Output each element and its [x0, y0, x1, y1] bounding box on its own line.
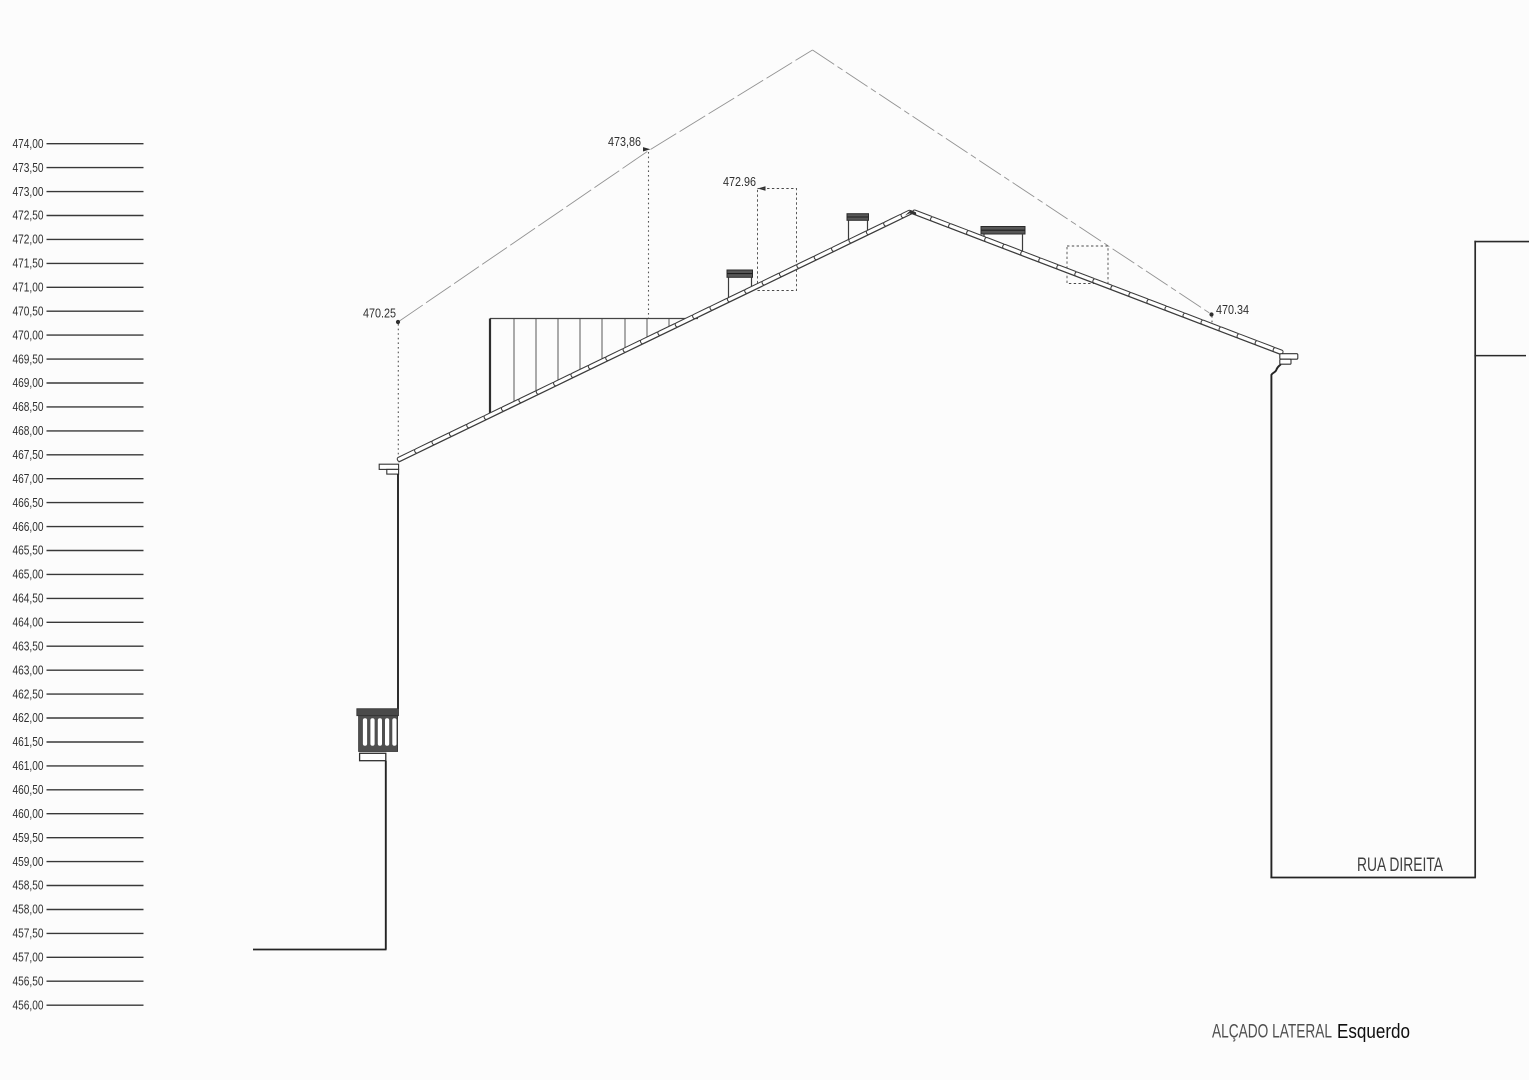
svg-text:459,00: 459,00	[13, 855, 44, 869]
svg-text:466,50: 466,50	[13, 496, 44, 510]
svg-text:461,50: 461,50	[13, 735, 44, 749]
svg-text:456,50: 456,50	[13, 975, 44, 989]
svg-text:472.96: 472.96	[723, 174, 756, 189]
svg-text:472,50: 472,50	[13, 209, 44, 223]
svg-text:463,00: 463,00	[13, 663, 44, 677]
svg-text:460,50: 460,50	[13, 783, 44, 797]
svg-text:457,00: 457,00	[13, 951, 44, 965]
svg-text:470.34: 470.34	[1216, 302, 1249, 317]
svg-text:ALÇADO LATERAL: ALÇADO LATERAL	[1212, 1021, 1332, 1043]
svg-text:464,00: 464,00	[13, 616, 44, 630]
svg-text:458,50: 458,50	[13, 879, 44, 893]
svg-text:465,50: 465,50	[13, 544, 44, 558]
svg-text:460,00: 460,00	[13, 807, 44, 821]
svg-text:468,50: 468,50	[13, 400, 44, 414]
svg-text:471,00: 471,00	[13, 281, 44, 295]
svg-text:458,00: 458,00	[13, 903, 44, 917]
svg-text:470,50: 470,50	[13, 304, 44, 318]
svg-text:473,86: 473,86	[608, 134, 641, 149]
svg-text:Esquerdo: Esquerdo	[1337, 1021, 1410, 1043]
svg-text:459,50: 459,50	[13, 831, 44, 845]
svg-text:466,00: 466,00	[13, 520, 44, 534]
svg-text:469,50: 469,50	[13, 352, 44, 366]
svg-text:468,00: 468,00	[13, 424, 44, 438]
svg-text:464,50: 464,50	[13, 592, 44, 606]
svg-text:462,50: 462,50	[13, 687, 44, 701]
svg-text:474,00: 474,00	[13, 137, 44, 151]
svg-text:472,00: 472,00	[13, 233, 44, 247]
svg-text:456,00: 456,00	[13, 998, 44, 1012]
svg-text:467,00: 467,00	[13, 472, 44, 486]
svg-text:RUA DIREITA: RUA DIREITA	[1357, 855, 1443, 876]
svg-text:473,50: 473,50	[13, 161, 44, 175]
svg-text:465,00: 465,00	[13, 568, 44, 582]
svg-text:470,00: 470,00	[13, 328, 44, 342]
svg-text:473,00: 473,00	[13, 185, 44, 199]
svg-text:463,50: 463,50	[13, 639, 44, 653]
svg-text:462,00: 462,00	[13, 711, 44, 725]
svg-text:470.25: 470.25	[363, 306, 396, 321]
svg-text:467,50: 467,50	[13, 448, 44, 462]
svg-text:457,50: 457,50	[13, 927, 44, 941]
svg-text:469,00: 469,00	[13, 376, 44, 390]
svg-text:471,50: 471,50	[13, 257, 44, 271]
svg-text:461,00: 461,00	[13, 759, 44, 773]
